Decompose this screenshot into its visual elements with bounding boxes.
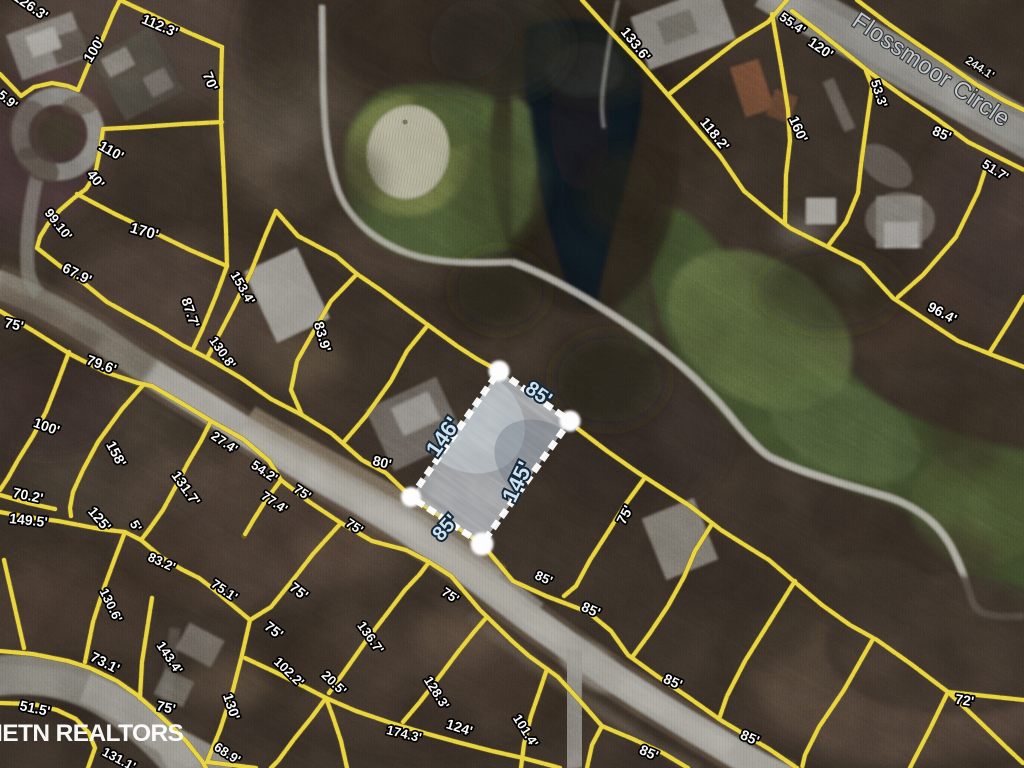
- svg-text:72': 72': [954, 691, 975, 709]
- svg-text:IETN REALTORS: IETN REALTORS: [0, 720, 184, 747]
